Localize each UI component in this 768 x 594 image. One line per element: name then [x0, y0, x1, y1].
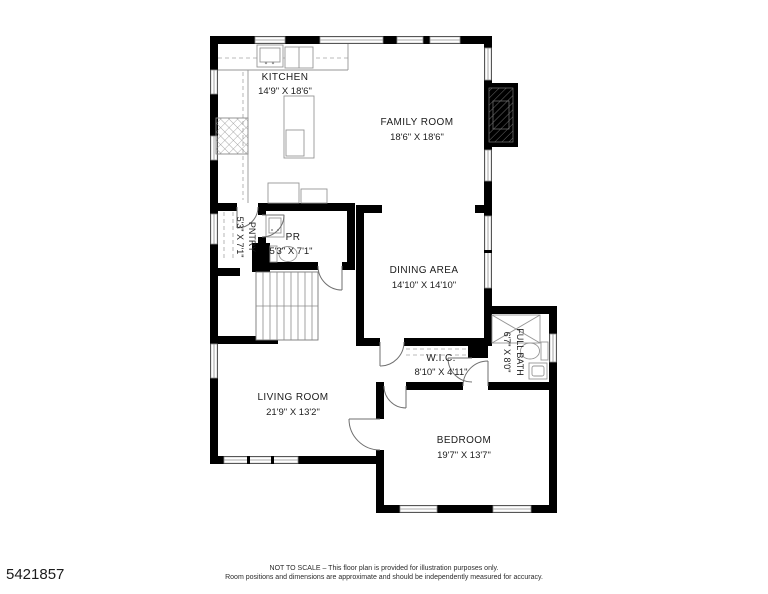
family-room-label: FAMILY ROOM	[381, 117, 454, 128]
refrigerator-part	[301, 189, 327, 203]
living-room-label: LIVING ROOM	[257, 392, 328, 403]
walls-part	[356, 338, 380, 346]
walls-part	[404, 338, 492, 346]
walls-part	[488, 382, 557, 390]
range-stove-part	[216, 118, 248, 154]
walls-part	[484, 306, 492, 346]
kitchen-cabinet	[285, 47, 313, 68]
windows-part	[484, 250, 492, 253]
kitchen-sink-part	[260, 48, 280, 62]
walls-part	[484, 306, 557, 314]
bedroom-dims: 19'7" X 13'7"	[437, 450, 491, 461]
bedroom-label: BEDROOM	[437, 435, 491, 446]
walls-part	[356, 205, 364, 346]
walls-part	[475, 205, 492, 213]
walls-part	[210, 36, 218, 464]
fireplace	[484, 83, 518, 147]
full-bath-label: FULL BATH	[515, 328, 525, 376]
full-bath-dims: 6'7" X 8'0"	[502, 332, 512, 373]
kitchen-island-part	[286, 130, 304, 156]
walls-part	[347, 203, 355, 270]
hall-door	[380, 342, 404, 366]
bedroom-door	[384, 386, 406, 408]
wic-dims: 8'10" X 4'11"	[415, 367, 468, 378]
powder-room-sink-part	[269, 218, 281, 233]
walls-part	[258, 203, 266, 215]
family-room-dims: 18'6" X 18'6"	[390, 132, 444, 143]
wic-label: W.I.C.	[426, 353, 456, 364]
walls-part	[376, 450, 384, 513]
walls-part	[406, 382, 463, 390]
walls-part	[468, 346, 488, 358]
dining-area-dims: 14'10" X 14'10"	[392, 280, 456, 291]
disclaimer: NOT TO SCALE – This floor plan is provid…	[0, 565, 768, 582]
dining-area-label: DINING AREA	[390, 265, 459, 276]
disclaimer-line-2: Room positions and dimensions are approx…	[0, 574, 768, 583]
floor-plan-page: KITCHEN 14'9" X 18'6" FAMILY ROOM 18'6" …	[0, 0, 768, 594]
pantry-shelves-part	[224, 212, 233, 260]
kitchen-label: KITCHEN	[262, 72, 309, 83]
bath-toilet-part	[541, 342, 548, 360]
kitchen-sink	[257, 45, 283, 67]
disclaimer-line-1: NOT TO SCALE – This floor plan is provid…	[0, 565, 768, 574]
walls-part	[252, 262, 318, 270]
kitchen-sink-part	[272, 62, 274, 64]
kitchen-dims: 14'9" X 18'6"	[258, 86, 312, 97]
walls-part	[342, 262, 355, 270]
windows-part	[247, 456, 250, 464]
staircase	[256, 272, 318, 340]
refrigerator-part	[268, 183, 299, 203]
living-room-dims: 21'9" X 13'2"	[266, 407, 320, 418]
pantry-dims: 5'3" X 7'1"	[235, 217, 245, 258]
bath-sink-part	[532, 366, 544, 376]
kitchen-island	[284, 96, 314, 158]
powder-room-label: PR	[286, 232, 301, 243]
floor-plan-drawing: KITCHEN 14'9" X 18'6" FAMILY ROOM 18'6" …	[0, 0, 768, 594]
bath-sink	[529, 363, 547, 379]
powder-room-sink-part	[271, 229, 273, 231]
pantry-shelves	[224, 212, 233, 260]
walls-part	[210, 268, 240, 276]
kitchen-sink-part	[265, 62, 267, 64]
living-room-door	[349, 419, 380, 450]
walls-part	[258, 203, 355, 211]
range-stove	[216, 118, 248, 154]
refrigerator	[268, 183, 327, 203]
powder-room-dims: 5'3" X 7'1"	[269, 246, 312, 257]
windows-part	[271, 456, 274, 464]
fireplace-part	[489, 88, 513, 142]
stairs-door	[318, 266, 342, 290]
walls-part	[210, 203, 237, 211]
walls-part	[376, 390, 384, 419]
walls-part	[376, 382, 384, 390]
pantry-label: PNTRY	[247, 222, 257, 252]
